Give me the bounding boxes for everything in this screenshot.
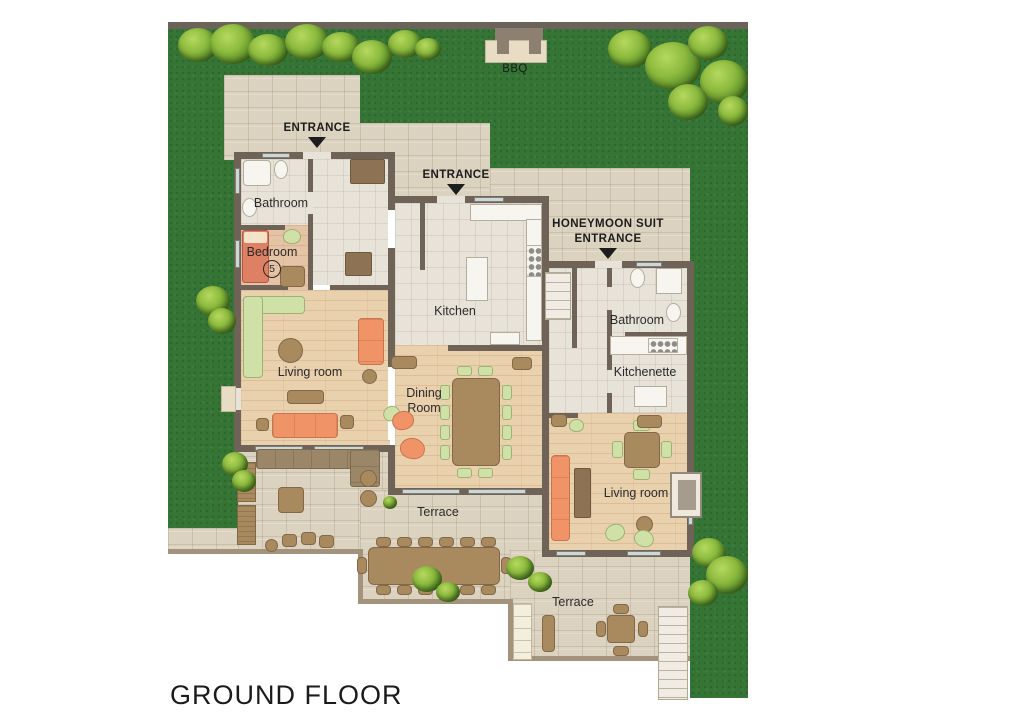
pouf bbox=[360, 470, 377, 487]
window bbox=[235, 240, 240, 268]
kitchenette-label: Kitchenette bbox=[614, 365, 677, 379]
kitchen-counter-right bbox=[526, 219, 542, 341]
dining-chair bbox=[478, 366, 493, 376]
bush bbox=[208, 308, 236, 334]
dining-chair bbox=[440, 425, 450, 440]
bush bbox=[383, 496, 397, 509]
stove bbox=[526, 245, 542, 277]
door-main-left-entrance bbox=[303, 152, 331, 159]
terrace-chair bbox=[613, 646, 629, 656]
bench bbox=[551, 414, 567, 427]
dining-chair bbox=[502, 405, 512, 420]
side-table bbox=[340, 415, 354, 429]
suite-chair bbox=[661, 441, 672, 458]
door-honeymoon-entrance bbox=[595, 261, 622, 268]
sink bbox=[666, 303, 681, 322]
suite-table bbox=[624, 432, 660, 468]
bush bbox=[248, 34, 288, 66]
terrace-table bbox=[607, 615, 635, 643]
bedroom-chair bbox=[283, 229, 301, 244]
sun-lounger bbox=[237, 505, 256, 545]
bedroom-dresser bbox=[280, 266, 305, 287]
sideboard bbox=[391, 356, 417, 369]
dining-chair bbox=[502, 385, 512, 400]
terrace-edge bbox=[168, 549, 360, 554]
window bbox=[468, 489, 526, 494]
outdoor-table bbox=[278, 487, 304, 513]
bush bbox=[688, 26, 728, 60]
bbq-leg bbox=[529, 40, 541, 54]
stool bbox=[282, 534, 297, 547]
pouf bbox=[360, 490, 377, 507]
wall-interior bbox=[308, 214, 313, 290]
side-table bbox=[362, 369, 377, 384]
window bbox=[235, 168, 240, 194]
entrance-arrow-icon bbox=[599, 248, 617, 259]
sofa bbox=[358, 318, 384, 365]
dining-room-label-line2: Room bbox=[407, 401, 440, 415]
bbq-grill bbox=[495, 28, 543, 40]
window bbox=[262, 153, 290, 158]
dining-chair bbox=[457, 366, 472, 376]
dining-table bbox=[452, 378, 500, 466]
entrance-path-left bbox=[224, 75, 360, 160]
floor-plan: BBQ ENTRANCE ENTRANCE HONEYMOON SUIT ENT… bbox=[0, 0, 1024, 720]
bench bbox=[542, 615, 555, 652]
bbq-leg bbox=[497, 40, 509, 54]
terrace-chair bbox=[418, 537, 433, 547]
terrace-chair bbox=[397, 537, 412, 547]
window bbox=[474, 197, 504, 202]
kitchen-island bbox=[466, 257, 488, 301]
honeymoon-entrance-label-line1: HONEYMOON SUIT bbox=[552, 218, 664, 230]
window bbox=[636, 262, 662, 267]
console-table bbox=[574, 468, 591, 518]
living-room-suite-label: Living room bbox=[604, 486, 669, 500]
terrace-chair bbox=[397, 585, 412, 595]
terrace-chair bbox=[460, 537, 475, 547]
dishwasher bbox=[490, 332, 520, 345]
dining-chair bbox=[502, 425, 512, 440]
bush bbox=[688, 580, 718, 606]
terrace-chair bbox=[638, 621, 648, 637]
wall-interior bbox=[448, 345, 542, 351]
entrance-arrow-icon bbox=[447, 184, 465, 195]
bush bbox=[352, 40, 392, 74]
terrace-chair bbox=[596, 621, 606, 637]
dining-chair bbox=[440, 445, 450, 460]
kitchenette-sink-counter bbox=[634, 386, 667, 407]
entrance-main-label: ENTRANCE bbox=[422, 169, 489, 181]
terrace-main-label: Terrace bbox=[417, 505, 459, 519]
window bbox=[627, 551, 661, 556]
stool bbox=[301, 532, 316, 545]
stool bbox=[319, 535, 334, 548]
terrace-chair bbox=[481, 585, 496, 595]
dining-chair bbox=[502, 445, 512, 460]
bush bbox=[232, 470, 256, 492]
shower bbox=[656, 268, 682, 294]
armchair bbox=[569, 419, 584, 432]
dining-chair bbox=[440, 405, 450, 420]
terrace-suite-label: Terrace bbox=[552, 595, 594, 609]
terrace-chair bbox=[376, 537, 391, 547]
sofa bbox=[272, 413, 338, 438]
suite-chair bbox=[633, 469, 650, 480]
honeymoon-entrance-label-line2: ENTRANCE bbox=[574, 233, 641, 245]
wall-interior bbox=[420, 203, 425, 270]
toilet bbox=[630, 268, 645, 288]
wall-interior bbox=[388, 248, 395, 367]
fireplace-inner bbox=[678, 480, 696, 510]
bathtub bbox=[243, 160, 271, 186]
bush bbox=[528, 572, 552, 592]
side-table bbox=[256, 418, 269, 431]
bedroom-label: Bedroom bbox=[247, 245, 298, 259]
suite-chair bbox=[612, 441, 623, 458]
window bbox=[556, 551, 586, 556]
toilet bbox=[274, 160, 288, 179]
terrace-chair bbox=[613, 604, 629, 614]
bedroom-number-badge: 5 bbox=[263, 260, 281, 278]
bed-pillow bbox=[244, 232, 267, 243]
sofa bbox=[551, 455, 570, 541]
dining-chair bbox=[478, 468, 493, 478]
hall-wardrobe bbox=[350, 159, 385, 184]
kitchen-label: Kitchen bbox=[434, 304, 476, 318]
side-door-stoop bbox=[221, 386, 236, 412]
terrace-chair bbox=[481, 537, 496, 547]
sideboard bbox=[637, 415, 662, 428]
wall-interior bbox=[607, 268, 612, 287]
entrance-arrow-icon bbox=[308, 137, 326, 148]
terrace-chair bbox=[376, 585, 391, 595]
terrace-chair bbox=[357, 557, 367, 574]
dining-room-label-line1: Dining bbox=[406, 386, 441, 400]
bush bbox=[718, 96, 748, 126]
bathroom-suite-label: Bathroom bbox=[610, 313, 664, 327]
entrance-left-label: ENTRANCE bbox=[283, 122, 350, 134]
terrace-edge bbox=[358, 599, 513, 604]
terrace-chair bbox=[439, 537, 454, 547]
window bbox=[402, 489, 460, 494]
wall bbox=[388, 196, 549, 203]
staircase bbox=[545, 272, 571, 320]
wall-interior bbox=[607, 393, 612, 413]
door-bathroom-main bbox=[308, 192, 313, 214]
corner-sofa-green bbox=[243, 296, 263, 378]
stool bbox=[265, 539, 278, 552]
bathroom-main-label: Bathroom bbox=[254, 196, 308, 210]
bush bbox=[415, 38, 441, 60]
garden-fence bbox=[168, 22, 748, 29]
bush bbox=[668, 84, 708, 120]
stove bbox=[648, 338, 678, 353]
coffee-table bbox=[287, 390, 324, 404]
dining-chair bbox=[457, 468, 472, 478]
floor-title: GROUND FLOOR bbox=[170, 680, 403, 711]
wall-interior bbox=[330, 285, 388, 290]
door-main-entrance bbox=[437, 196, 465, 203]
living-room-main-label: Living room bbox=[278, 365, 343, 379]
terrace-chair bbox=[460, 585, 475, 595]
garden-grass-right bbox=[690, 168, 748, 698]
wall-interior bbox=[572, 268, 577, 348]
bush bbox=[436, 582, 460, 602]
sun-lounger bbox=[513, 603, 532, 660]
wall bbox=[542, 196, 549, 268]
garden-steps bbox=[658, 606, 688, 700]
ottoman bbox=[278, 338, 303, 363]
hall-closet bbox=[345, 252, 372, 276]
sideboard bbox=[512, 357, 532, 370]
bbq-label: BBQ bbox=[502, 63, 528, 75]
